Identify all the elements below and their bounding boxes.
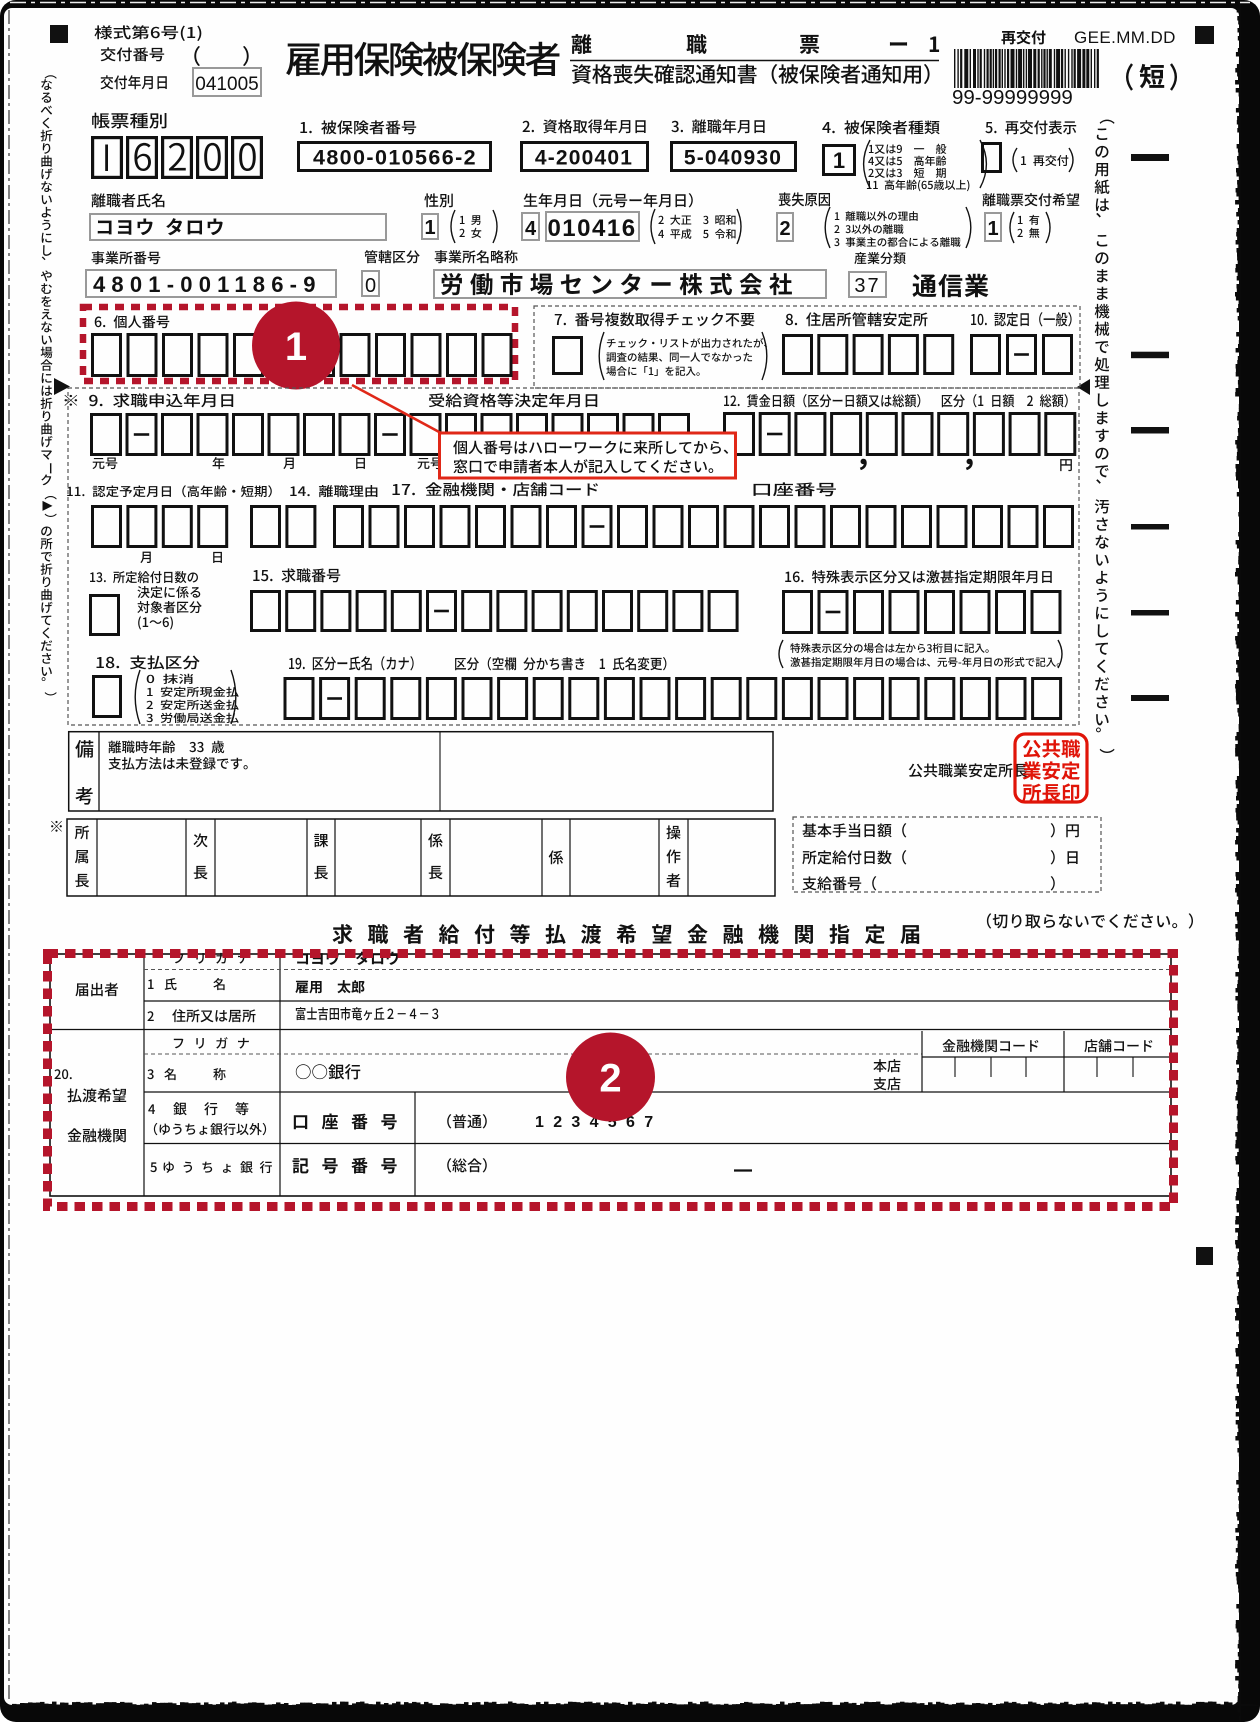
svg-text:0: 0 bbox=[365, 275, 376, 297]
svg-text:37: 37 bbox=[854, 275, 880, 297]
svg-text:5-040930: 5-040930 bbox=[684, 147, 782, 170]
svg-text:GEE.MM.DD: GEE.MM.DD bbox=[1074, 28, 1176, 47]
svg-text:041005: 041005 bbox=[195, 74, 258, 95]
svg-text:2: 2 bbox=[599, 1057, 621, 1101]
svg-text:4: 4 bbox=[525, 218, 537, 240]
svg-text:1: 1 bbox=[424, 217, 435, 239]
svg-text:1: 1 bbox=[285, 325, 307, 369]
svg-text:1: 1 bbox=[987, 218, 998, 240]
svg-text:010416: 010416 bbox=[547, 215, 636, 242]
svg-text:2: 2 bbox=[779, 218, 790, 240]
svg-text:99-99999999: 99-99999999 bbox=[952, 86, 1073, 109]
svg-text:4-200401: 4-200401 bbox=[535, 147, 633, 170]
svg-text:4801-001186-9: 4801-001186-9 bbox=[93, 272, 322, 297]
svg-text:1: 1 bbox=[833, 148, 845, 173]
svg-text:4800-010566-2: 4800-010566-2 bbox=[313, 146, 477, 170]
